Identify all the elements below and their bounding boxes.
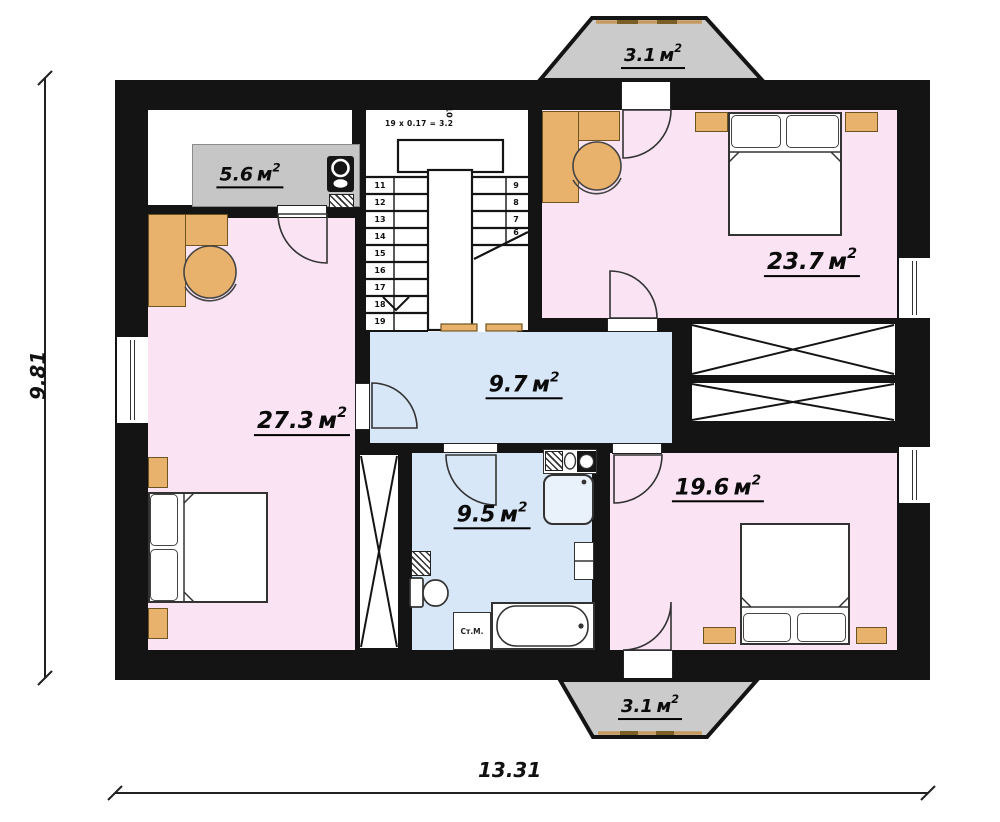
window-frame: [130, 340, 135, 420]
shower-tray: [543, 474, 594, 525]
floor-plan: Ст.М.: [0, 0, 1000, 822]
nightstand: [148, 608, 168, 639]
stair-step-number: 13: [366, 215, 394, 224]
stair-step-number: 14: [366, 232, 394, 241]
bathroom-hatch-box: [411, 551, 431, 576]
area-label-bathroom: 9.5 м2: [454, 502, 531, 529]
desk: [148, 214, 186, 307]
door-gap-bathroom: [443, 443, 498, 453]
door-gap-bedroom-bottom-right: [612, 443, 662, 454]
stair-step-number: 9: [504, 181, 528, 190]
vanity-hatch: [545, 451, 563, 471]
stair-step-number-top: 10: [445, 107, 454, 121]
door-gap-balcony-bottom: [623, 650, 673, 680]
window-frame: [912, 261, 917, 315]
nightstand: [703, 627, 736, 644]
stair-step-number: 7: [504, 215, 528, 224]
area-label-bedroom-bottom-right: 19.6 м2: [672, 475, 764, 502]
stairs-formula: 19 x 0.17 = 3.2: [385, 119, 480, 128]
room-bedroom-top-right: [542, 110, 897, 318]
area-label-bedroom-left: 27.3 м2: [254, 408, 350, 436]
area-label-balcony-bottom: 3.1 м2: [618, 696, 682, 720]
nightstand: [856, 627, 887, 644]
door-gap-balcony-top: [621, 81, 671, 110]
stair-step-number: 11: [366, 181, 394, 190]
stair-step-number: 12: [366, 198, 394, 207]
kitchen-hatch-box: [329, 194, 354, 208]
nightstand: [845, 112, 878, 132]
washing-machine: Ст.М.: [453, 612, 491, 650]
pillow: [150, 549, 178, 601]
wardrobe: [690, 322, 897, 377]
area-label-bedroom-top-right: 23.7 м2: [764, 249, 860, 277]
stair-step-number: 15: [366, 249, 394, 258]
pillow: [743, 613, 791, 642]
wardrobe: [358, 453, 400, 650]
stair-step-number: 19: [366, 317, 394, 326]
stairs-opening: [428, 318, 517, 332]
stair-step-number: 17: [366, 283, 394, 292]
pillow: [786, 115, 839, 148]
door-gap-bedroom-top-right: [607, 318, 658, 332]
window-right-top: [899, 258, 930, 318]
washing-machine-label: Ст.М.: [454, 627, 490, 636]
area-label-hall: 9.7 м2: [486, 372, 563, 399]
towel-rail: [574, 542, 594, 580]
window-left: [117, 337, 148, 423]
window-right-bottom: [899, 447, 930, 503]
area-label-balcony-top: 3.1 м2: [621, 45, 685, 69]
door-gap-kitchen: [277, 205, 327, 218]
pillow: [150, 494, 178, 546]
stair-step-number: 16: [366, 266, 394, 275]
stair-step-number: 18: [366, 300, 394, 309]
dimension-height-label: 9.81: [26, 352, 50, 400]
pillow: [797, 613, 846, 642]
door-gap-bedroom-left: [355, 383, 370, 430]
stair-step-number: 6: [504, 228, 528, 237]
bathtub: [491, 602, 595, 650]
nightstand: [695, 112, 728, 132]
window-frame: [912, 450, 917, 500]
pillow: [731, 115, 781, 148]
dimension-line-horizontal: [108, 786, 935, 800]
wardrobe: [690, 381, 897, 423]
nightstand: [148, 457, 168, 488]
dimension-width-label: 13.31: [478, 758, 538, 782]
desk: [542, 111, 579, 203]
area-label-kitchen: 5.6 м2: [216, 163, 283, 188]
stair-step-number: 8: [504, 198, 528, 207]
